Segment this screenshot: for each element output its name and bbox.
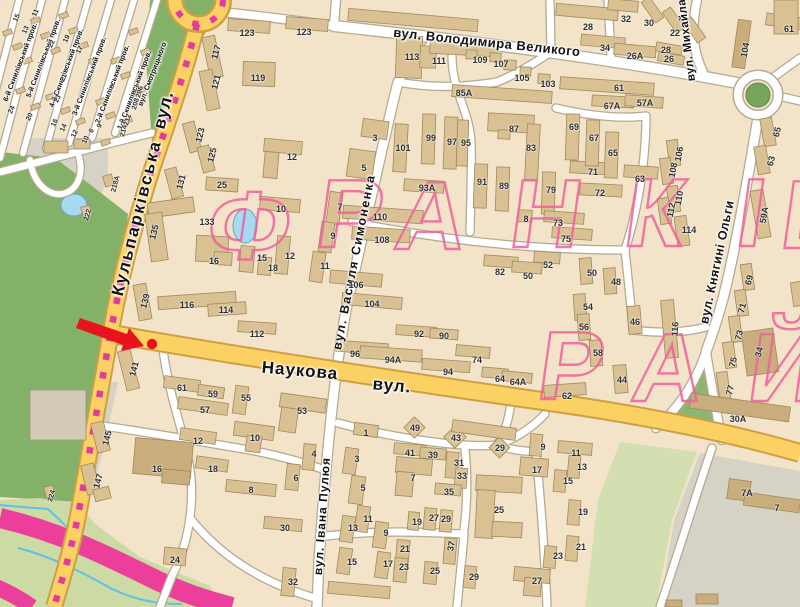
building xyxy=(504,60,517,71)
building xyxy=(543,546,557,569)
building xyxy=(683,17,706,43)
building xyxy=(232,385,249,415)
building xyxy=(728,315,743,342)
marker-dot[interactable] xyxy=(147,339,157,349)
building xyxy=(74,139,90,149)
building xyxy=(420,447,447,460)
building xyxy=(463,566,477,589)
building xyxy=(523,577,542,596)
building xyxy=(696,594,718,604)
building xyxy=(740,263,755,290)
building xyxy=(490,53,501,63)
building xyxy=(732,19,752,68)
building xyxy=(492,521,523,538)
building xyxy=(498,130,510,140)
building xyxy=(135,87,145,95)
building xyxy=(342,447,358,475)
watermark-letter: Й xyxy=(742,312,800,421)
building xyxy=(105,112,115,120)
building xyxy=(197,384,224,399)
building xyxy=(348,475,366,505)
building xyxy=(245,435,262,453)
building xyxy=(286,17,329,32)
building xyxy=(443,538,457,565)
building xyxy=(302,444,316,471)
building xyxy=(790,281,800,306)
building xyxy=(456,345,491,359)
building xyxy=(421,114,436,164)
building xyxy=(393,557,408,582)
map-canvas[interactable]: ФРАНКІВРАЙ вул. Володимира ВеликогоКульп… xyxy=(0,0,800,607)
building xyxy=(466,50,477,60)
building xyxy=(145,212,169,262)
watermark-letter: А xyxy=(389,161,474,269)
building xyxy=(435,483,462,496)
building xyxy=(30,390,86,440)
building xyxy=(44,141,68,153)
building xyxy=(395,36,422,79)
building xyxy=(264,516,303,531)
building xyxy=(567,456,581,479)
building xyxy=(407,512,420,531)
building xyxy=(353,422,378,437)
building xyxy=(614,43,657,58)
building xyxy=(565,114,580,160)
building xyxy=(285,463,301,490)
building xyxy=(197,145,215,173)
building xyxy=(226,479,277,496)
building xyxy=(439,510,453,533)
roundabout-green-island xyxy=(746,83,770,107)
building xyxy=(360,346,423,362)
building xyxy=(195,456,228,472)
building xyxy=(625,95,664,109)
road xyxy=(457,534,464,607)
building xyxy=(452,85,553,104)
building xyxy=(278,407,298,433)
building xyxy=(608,0,639,12)
building xyxy=(12,43,22,51)
building xyxy=(372,521,388,549)
building xyxy=(45,93,55,101)
building xyxy=(422,358,471,372)
building xyxy=(666,600,682,607)
watermark-letter: Р xyxy=(311,159,391,267)
building xyxy=(558,441,593,456)
building xyxy=(328,581,391,598)
building xyxy=(520,67,531,77)
building xyxy=(613,364,628,393)
building xyxy=(760,117,777,147)
road xyxy=(550,0,551,52)
building xyxy=(553,470,567,493)
building xyxy=(177,397,228,416)
building xyxy=(208,302,247,317)
building xyxy=(774,0,798,34)
building xyxy=(133,283,152,321)
building xyxy=(565,536,579,562)
building xyxy=(519,457,548,477)
watermark-letter: Ф xyxy=(201,171,299,279)
building xyxy=(40,32,50,40)
building xyxy=(603,268,617,295)
map-base-layer: ФРАНКІВРАЙ xyxy=(0,0,800,607)
building xyxy=(423,508,437,531)
building xyxy=(243,61,276,86)
building xyxy=(238,321,277,335)
building xyxy=(529,434,543,457)
road xyxy=(0,0,42,158)
building xyxy=(430,328,459,340)
building xyxy=(330,270,383,287)
building xyxy=(361,118,389,139)
building xyxy=(128,28,138,36)
building xyxy=(538,74,551,85)
watermark-letter: В xyxy=(775,160,800,268)
road xyxy=(69,0,111,143)
building xyxy=(60,107,70,115)
building xyxy=(580,183,623,197)
building xyxy=(228,19,271,34)
building xyxy=(495,167,510,211)
building xyxy=(163,547,186,566)
building xyxy=(395,471,414,496)
building xyxy=(641,0,664,23)
building xyxy=(161,469,190,485)
building xyxy=(374,551,390,579)
building xyxy=(117,349,139,391)
building xyxy=(423,561,438,584)
building xyxy=(579,258,593,285)
building xyxy=(662,7,685,33)
building xyxy=(281,567,296,596)
building xyxy=(339,515,355,543)
building xyxy=(734,289,749,316)
building xyxy=(456,120,469,166)
road xyxy=(23,0,65,153)
building xyxy=(502,371,533,384)
building xyxy=(722,341,737,368)
building xyxy=(604,132,619,178)
building xyxy=(567,500,581,526)
road xyxy=(464,450,467,530)
road xyxy=(771,58,800,79)
building xyxy=(336,547,352,575)
building xyxy=(164,167,183,199)
building xyxy=(560,77,655,96)
road xyxy=(46,0,88,148)
building xyxy=(473,164,488,208)
